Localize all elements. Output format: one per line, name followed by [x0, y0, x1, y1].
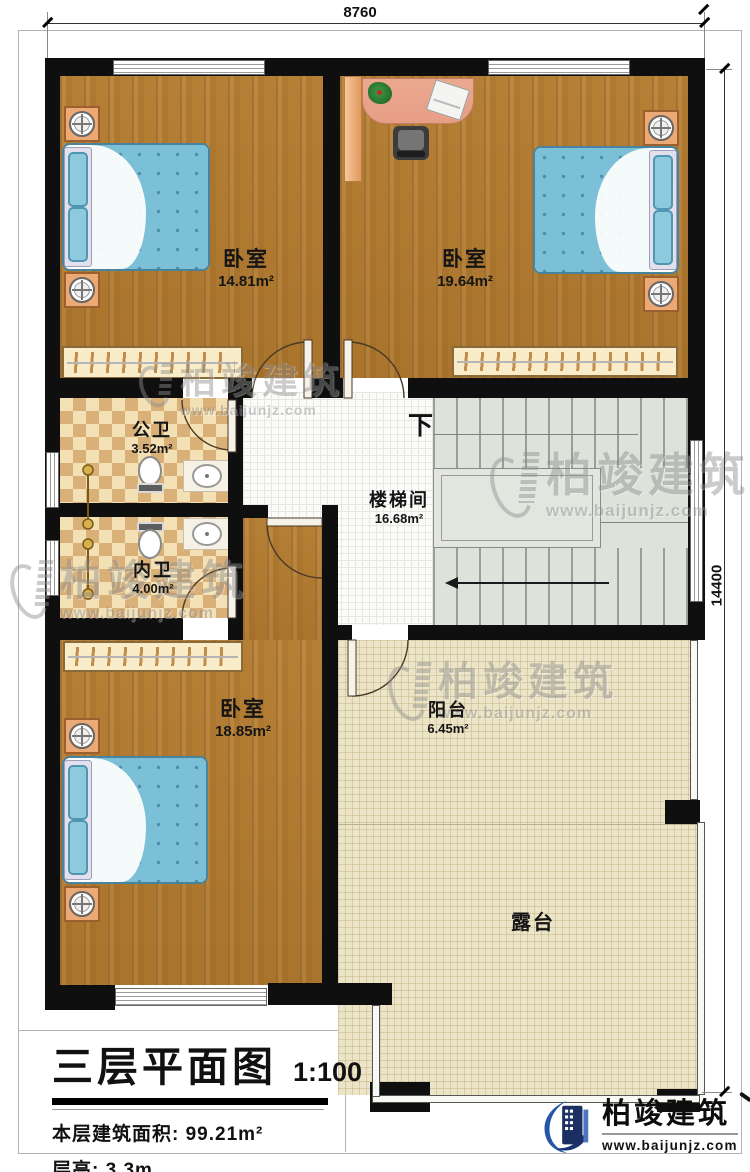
plan-title: 三层平面图	[52, 1044, 277, 1090]
room-name: 卧室	[215, 698, 271, 723]
stairs-down-label: 下	[408, 406, 433, 442]
room-area: 3.52m²	[131, 441, 172, 456]
door-leaf	[267, 518, 322, 526]
room-area: 19.64m²	[437, 273, 493, 291]
doors-overlay	[0, 0, 750, 1172]
title-rule-thin	[52, 1109, 324, 1110]
room-label-private-bath: 内卫 4.00m²	[132, 560, 173, 597]
room-name: 露台	[511, 912, 555, 936]
rail-knob	[83, 539, 93, 549]
extension-line	[706, 69, 732, 70]
room-name: 楼梯间	[369, 490, 429, 511]
title-rule-thick	[52, 1098, 328, 1105]
door-leaf	[228, 566, 236, 618]
floorplan-sheet: 柏竣建筑 www.baijunjz.com 柏竣建筑 www.baijunjz.…	[0, 0, 750, 1172]
room-label-bedroom-1: 卧室 14.81m²	[218, 248, 274, 290]
door-arc	[348, 342, 404, 398]
rail-knob	[83, 519, 93, 529]
brand-logo: 柏竣建筑 www.baijunjz.com	[538, 1098, 738, 1154]
room-label-bedroom-3: 卧室 18.85m²	[215, 698, 271, 740]
door-arc	[182, 400, 232, 450]
door-leaf	[304, 340, 312, 398]
room-label-terrace: 露台	[511, 912, 555, 936]
door-leaf	[348, 640, 356, 696]
room-area: 6.45m²	[427, 721, 468, 736]
room-name: 阳台	[427, 700, 468, 721]
room-label-public-bath: 公卫 3.52m²	[131, 420, 172, 457]
brand-company-text: 柏竣建筑	[602, 1098, 730, 1130]
brand-company: 柏竣建筑	[602, 1099, 738, 1131]
room-name: 公卫	[131, 420, 172, 441]
door-leaf	[228, 400, 236, 452]
plan-scale: 1:100	[293, 1057, 362, 1087]
room-area: 16.68m²	[369, 511, 429, 526]
room-label-stairwell: 楼梯间 16.68m²	[369, 490, 429, 527]
door-leaf	[344, 340, 352, 398]
room-name: 卧室	[218, 248, 274, 273]
door-arc	[267, 526, 322, 578]
door-arc	[352, 640, 408, 696]
dimension-line-top	[47, 23, 705, 24]
room-label-bedroom-2: 卧室 19.64m²	[437, 248, 493, 290]
door-arc	[252, 342, 308, 398]
room-name: 内卫	[132, 560, 173, 581]
rail-knob	[83, 465, 93, 475]
floor-area-text: 本层建筑面积: 99.21m²	[52, 1119, 362, 1146]
dimension-top-value: 8760	[320, 4, 400, 21]
rail-knob	[83, 589, 93, 599]
extension-line	[702, 1092, 732, 1093]
room-area: 14.81m²	[218, 273, 274, 291]
door-arc	[182, 568, 232, 618]
room-area: 18.85m²	[215, 723, 271, 741]
floor-height-text: 层高: 3.3m	[52, 1155, 362, 1172]
brand-logo-icon	[538, 1098, 596, 1154]
room-area: 4.00m²	[132, 581, 173, 596]
title-block: 三层平面图1:100 本层建筑面积: 99.21m² 层高: 3.3m	[52, 1033, 362, 1172]
dimension-right-value: 14400	[709, 551, 726, 621]
room-label-balcony: 阳台 6.45m²	[427, 700, 468, 737]
brand-website: www.baijunjz.com	[602, 1133, 738, 1153]
room-name: 卧室	[437, 248, 493, 273]
